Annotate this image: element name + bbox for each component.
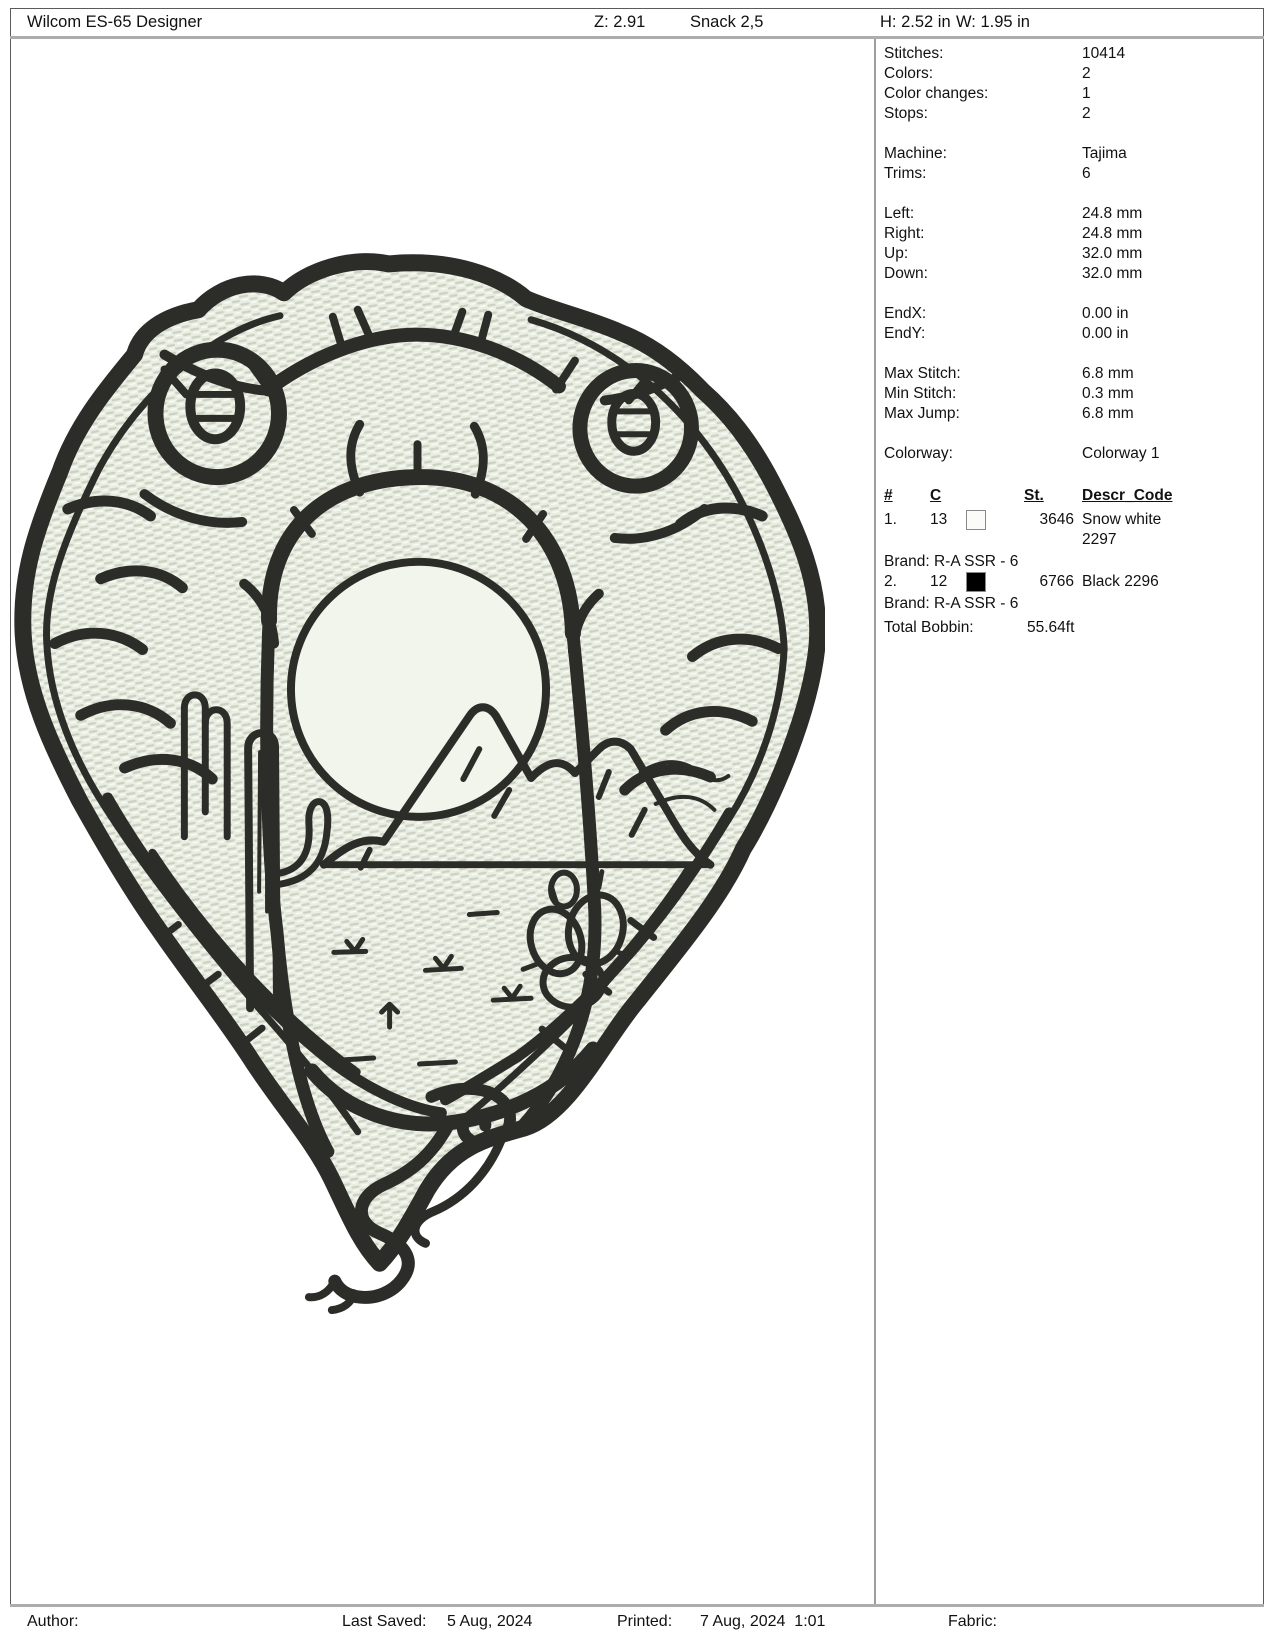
last-saved-label: Last Saved: [342,1613,427,1631]
stat-row: Machine:Tajima [884,144,1274,164]
stat-value: 6 [1082,164,1274,184]
stat-value: 1 [1082,84,1274,104]
color-number: 1. [884,510,930,530]
color-descr: Snow white 2297 [1082,510,1186,550]
col-swatch [966,486,1024,506]
color-stitches: 6766 [1024,572,1074,592]
col-descr-code: Descr_Code [1082,486,1186,506]
stat-label: Right: [884,224,1082,244]
stat-row: Color changes:1 [884,84,1274,104]
total-bobbin-label: Total Bobbin: [884,618,1027,638]
stat-label: Min Stitch: [884,384,1082,404]
total-bobbin-value: 55.64ft [1027,618,1074,638]
sun [291,562,546,817]
stat-label: Max Stitch: [884,364,1082,384]
stat-row: Up:32.0 mm [884,244,1274,264]
wilcom-print-preview: Wilcom ES-65 Designer Z: 2.91 Snack 2,5 … [0,0,1275,1650]
col-number: # [884,486,930,506]
design-details-panel: Stitches:10414 Colors:2 Color changes:1 … [876,38,1274,638]
color-swatch-snow-white [966,510,986,530]
app-title: Wilcom ES-65 Designer [27,13,202,32]
thread-brand: Brand: R-A SSR - 6 [884,594,1274,614]
report-header: Wilcom ES-65 Designer Z: 2.91 Snack 2,5 … [10,8,1264,39]
stat-label: Color changes: [884,84,1082,104]
color-descr: Black 2296 [1082,572,1186,592]
stat-row: Min Stitch:0.3 mm [884,384,1274,404]
color-row: 2. 12 6766 Black 2296 [884,572,1274,592]
stat-label: Down: [884,264,1082,284]
stat-value: 32.0 mm [1082,244,1274,264]
stat-label: Trims: [884,164,1082,184]
stat-value: 32.0 mm [1082,264,1274,284]
stat-row: Max Jump:6.8 mm [884,404,1274,424]
stat-label: Machine: [884,144,1082,164]
total-bobbin-row: Total Bobbin: 55.64ft [884,618,1274,638]
printed-label: Printed: [617,1613,672,1631]
stat-row: Left:24.8 mm [884,204,1274,224]
stat-value: 6.8 mm [1082,404,1274,424]
stat-row: Max Stitch:6.8 mm [884,364,1274,384]
col-stitches: St. [1024,486,1074,506]
stat-value: 2 [1082,104,1274,124]
design-height: H: 2.52 in [880,13,951,32]
stat-row: EndX:0.00 in [884,304,1274,324]
report-footer: Author: Last Saved: 5 Aug, 2024 Printed:… [10,1604,1264,1640]
last-saved-value: 5 Aug, 2024 [447,1613,532,1631]
stat-value: 0.00 in [1082,304,1274,324]
stat-value: Colorway 1 [1082,444,1274,464]
stat-row: EndY:0.00 in [884,324,1274,344]
thread-brand: Brand: R-A SSR - 6 [884,552,1274,572]
color-stitches: 3646 [1024,510,1074,530]
embroidery-design-preview [13,252,825,1314]
author-label: Author: [27,1613,79,1631]
stat-row: Stops:2 [884,104,1274,124]
stat-row: Trims:6 [884,164,1274,184]
stat-label: Colors: [884,64,1082,84]
stat-label: Colorway: [884,444,1082,464]
color-row: 1. 13 3646 Snow white 2297 [884,510,1274,550]
stat-label: Stitches: [884,44,1082,64]
stat-row: Colorway:Colorway 1 [884,444,1274,464]
zoom-indicator: Z: 2.91 [594,13,645,32]
stat-value: 6.8 mm [1082,364,1274,384]
stat-value: 24.8 mm [1082,204,1274,224]
stat-value: 10414 [1082,44,1274,64]
stat-value: 2 [1082,64,1274,84]
stat-row: Down:32.0 mm [884,264,1274,284]
stat-label: EndY: [884,324,1082,344]
stat-label: Stops: [884,104,1082,124]
color-code: 13 [930,510,966,530]
stat-label: Max Jump: [884,404,1082,424]
color-number: 2. [884,572,930,592]
fabric-label: Fabric: [948,1613,997,1631]
color-swatch-black [966,572,986,592]
stat-row: Right:24.8 mm [884,224,1274,244]
stat-value: 24.8 mm [1082,224,1274,244]
stat-label: Up: [884,244,1082,264]
stat-value: 0.3 mm [1082,384,1274,404]
stat-value: Tajima [1082,144,1274,164]
color-table-header: # C St. Descr_Code [884,486,1274,506]
design-width: W: 1.95 in [956,13,1030,32]
color-code: 12 [930,572,966,592]
stat-row: Colors:2 [884,64,1274,84]
design-name: Snack 2,5 [690,13,763,32]
stat-row: Stitches:10414 [884,44,1274,64]
stat-value: 0.00 in [1082,324,1274,344]
printed-value: 7 Aug, 2024 1:01 [700,1613,825,1631]
col-code: C [930,486,966,506]
stat-label: Left: [884,204,1082,224]
stat-label: EndX: [884,304,1082,324]
